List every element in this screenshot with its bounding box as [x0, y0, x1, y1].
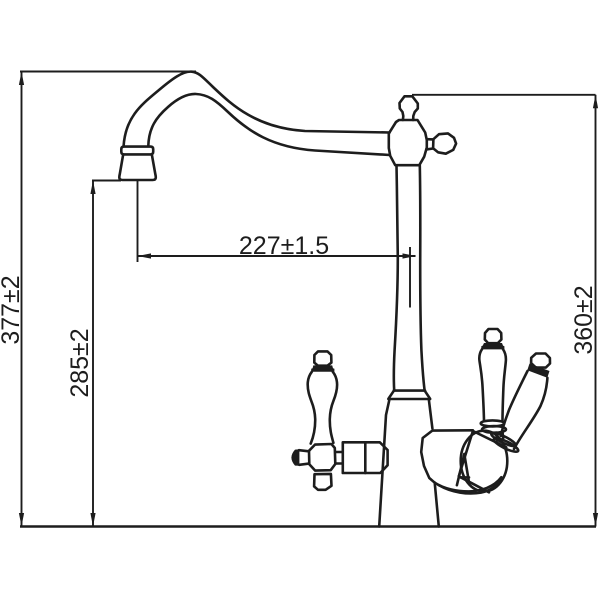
svg-text:285±2: 285±2 [66, 328, 94, 397]
svg-text:227±1.5: 227±1.5 [239, 232, 329, 260]
svg-text:377±2: 377±2 [0, 275, 25, 344]
svg-text:360±2: 360±2 [570, 285, 598, 354]
